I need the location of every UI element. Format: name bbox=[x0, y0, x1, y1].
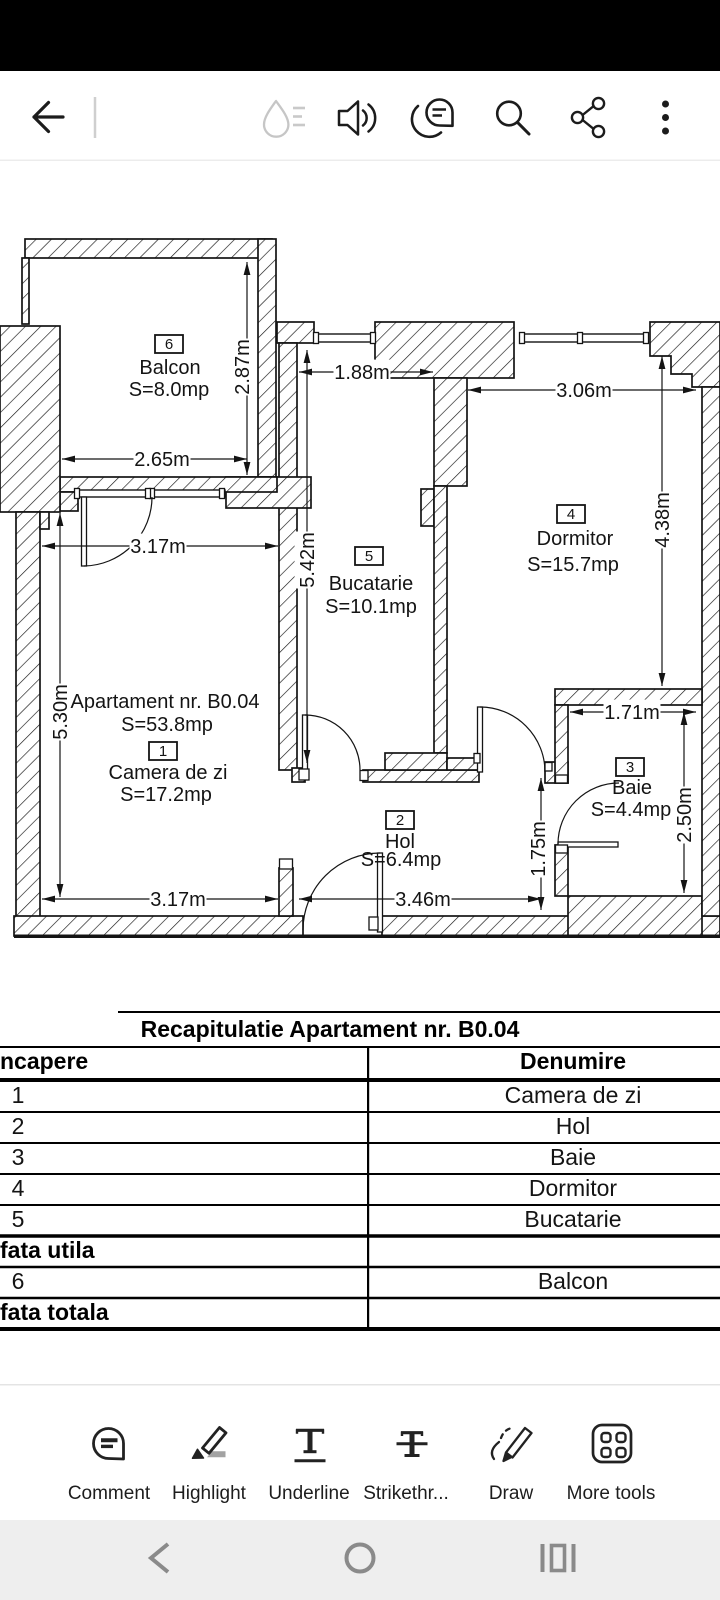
svg-text:1.88m: 1.88m bbox=[334, 362, 390, 384]
svg-text:5: 5 bbox=[365, 548, 373, 565]
svg-text:Baie: Baie bbox=[612, 777, 652, 799]
svg-text:2.87m: 2.87m bbox=[232, 339, 254, 395]
svg-text:Bucatarie: Bucatarie bbox=[524, 1206, 621, 1232]
svg-text:4: 4 bbox=[567, 506, 575, 523]
svg-text:1: 1 bbox=[12, 1082, 25, 1108]
svg-text:S=6.4mp: S=6.4mp bbox=[361, 849, 442, 871]
svg-text:Comment: Comment bbox=[68, 1483, 151, 1504]
svg-text:Highlight: Highlight bbox=[172, 1483, 247, 1504]
svg-text:3.46m: 3.46m bbox=[395, 889, 451, 911]
svg-text:S=17.2mp: S=17.2mp bbox=[120, 784, 212, 806]
svg-text:3.06m: 3.06m bbox=[556, 380, 612, 402]
svg-text:2.50m: 2.50m bbox=[674, 787, 696, 843]
svg-text:2.65m: 2.65m bbox=[134, 449, 190, 471]
svg-text:Denumire: Denumire bbox=[520, 1048, 626, 1074]
svg-text:Dormitor: Dormitor bbox=[537, 528, 614, 550]
svg-text:5.42m: 5.42m bbox=[297, 532, 319, 588]
svg-text:3.17m: 3.17m bbox=[150, 889, 206, 911]
svg-text:Camera de zi: Camera de zi bbox=[505, 1082, 642, 1108]
svg-text:Underline: Underline bbox=[268, 1483, 349, 1504]
svg-text:6: 6 bbox=[12, 1268, 25, 1294]
svg-text:ncapere: ncapere bbox=[0, 1048, 88, 1074]
svg-text:Draw: Draw bbox=[489, 1483, 534, 1504]
svg-text:4: 4 bbox=[12, 1175, 25, 1201]
svg-text:Bucatarie: Bucatarie bbox=[329, 573, 414, 595]
svg-text:Apartament nr. B0.04: Apartament nr. B0.04 bbox=[70, 691, 259, 713]
svg-text:S=15.7mp: S=15.7mp bbox=[527, 554, 619, 576]
svg-text:3.17m: 3.17m bbox=[130, 536, 186, 558]
svg-text:S=4.4mp: S=4.4mp bbox=[591, 799, 672, 821]
svg-text:4.38m: 4.38m bbox=[652, 492, 674, 548]
svg-text:fata totala: fata totala bbox=[0, 1299, 109, 1325]
svg-text:Dormitor: Dormitor bbox=[529, 1175, 618, 1201]
svg-text:Balcon: Balcon bbox=[139, 357, 200, 379]
svg-text:1.71m: 1.71m bbox=[604, 702, 660, 724]
svg-text:3: 3 bbox=[626, 759, 634, 776]
svg-text:Baie: Baie bbox=[550, 1144, 596, 1170]
svg-text:2: 2 bbox=[12, 1113, 25, 1139]
svg-text:5.30m: 5.30m bbox=[50, 684, 72, 740]
svg-text:Strikethr...: Strikethr... bbox=[363, 1483, 449, 1504]
svg-text:Recapitulatie Apartament nr. B: Recapitulatie Apartament nr. B0.04 bbox=[141, 1016, 520, 1042]
svg-text:fata utila: fata utila bbox=[0, 1237, 95, 1263]
svg-text:Hol: Hol bbox=[556, 1113, 591, 1139]
svg-text:1.75m: 1.75m bbox=[528, 821, 550, 877]
svg-text:Balcon: Balcon bbox=[538, 1268, 608, 1294]
svg-text:5: 5 bbox=[12, 1206, 25, 1232]
svg-text:2: 2 bbox=[396, 812, 404, 829]
svg-text:1: 1 bbox=[159, 743, 167, 760]
svg-text:6: 6 bbox=[165, 336, 173, 353]
svg-text:More tools: More tools bbox=[567, 1483, 656, 1504]
svg-text:3: 3 bbox=[12, 1144, 25, 1170]
svg-text:Camera de zi: Camera de zi bbox=[109, 762, 228, 784]
svg-text:S=53.8mp: S=53.8mp bbox=[121, 714, 213, 736]
svg-text:S=10.1mp: S=10.1mp bbox=[325, 596, 417, 618]
svg-text:S=8.0mp: S=8.0mp bbox=[129, 379, 210, 401]
